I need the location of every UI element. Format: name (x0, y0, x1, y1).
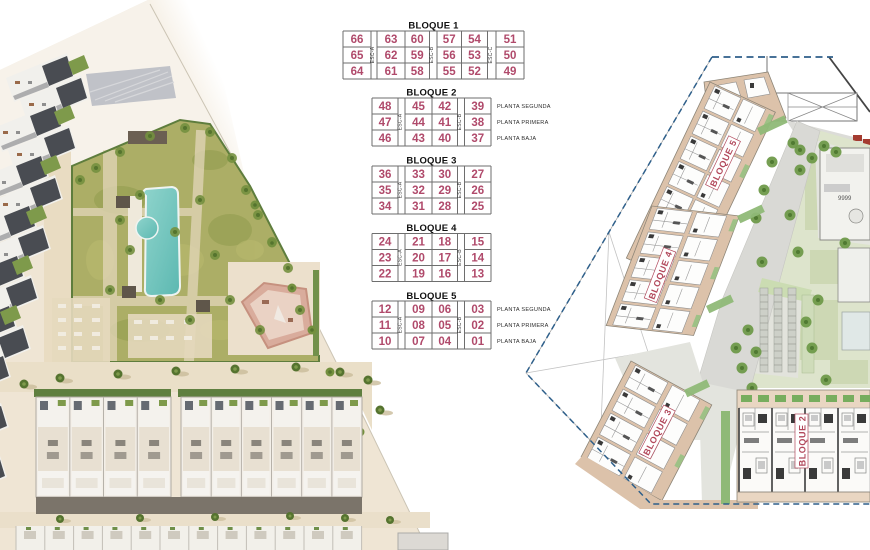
svg-text:ESC-A: ESC-A (398, 316, 404, 333)
svg-text:39: 39 (471, 101, 484, 113)
svg-text:42: 42 (438, 101, 451, 113)
svg-text:23: 23 (379, 253, 392, 265)
svg-text:31: 31 (412, 201, 425, 213)
svg-text:47: 47 (379, 117, 392, 129)
svg-text:BLOQUE 2: BLOQUE 2 (798, 416, 808, 467)
svg-text:34: 34 (379, 201, 392, 213)
svg-text:50: 50 (504, 50, 517, 62)
svg-text:ESC-B: ESC-B (457, 249, 463, 266)
svg-text:38: 38 (471, 117, 484, 129)
svg-text:26: 26 (471, 185, 484, 197)
svg-text:08: 08 (412, 320, 425, 332)
svg-text:36: 36 (379, 169, 392, 181)
svg-text:PLANTA BAJA: PLANTA BAJA (497, 136, 536, 142)
svg-text:ESC-A: ESC-A (370, 46, 376, 63)
svg-text:43: 43 (412, 133, 425, 145)
svg-text:ESC-A: ESC-A (398, 181, 404, 198)
svg-text:15: 15 (471, 237, 484, 249)
svg-text:PLANTA SEGUNDA: PLANTA SEGUNDA (497, 307, 551, 313)
svg-text:61: 61 (385, 66, 398, 78)
svg-text:63: 63 (385, 34, 398, 46)
svg-text:BLOQUE 1: BLOQUE 1 (408, 21, 459, 32)
svg-text:17: 17 (438, 253, 451, 265)
svg-text:58: 58 (411, 66, 424, 78)
svg-text:BLOQUE 3: BLOQUE 3 (406, 156, 456, 167)
svg-text:ESC-B: ESC-B (457, 113, 463, 130)
svg-text:18: 18 (438, 237, 451, 249)
svg-text:53: 53 (468, 50, 481, 62)
svg-text:11: 11 (379, 320, 392, 332)
svg-text:29: 29 (438, 185, 451, 197)
svg-text:52: 52 (468, 66, 481, 78)
svg-text:9999: 9999 (838, 196, 852, 202)
svg-text:54: 54 (468, 34, 481, 46)
svg-text:64: 64 (351, 66, 364, 78)
svg-text:19: 19 (412, 269, 425, 281)
svg-text:20: 20 (412, 253, 425, 265)
svg-text:33: 33 (412, 169, 425, 181)
svg-text:PLANTA SEGUNDA: PLANTA SEGUNDA (497, 104, 551, 110)
svg-text:ESC-A: ESC-A (398, 113, 404, 130)
svg-text:12: 12 (379, 304, 392, 316)
svg-text:09: 09 (412, 304, 425, 316)
svg-text:66: 66 (351, 34, 364, 46)
svg-text:BLOQUE 2: BLOQUE 2 (406, 88, 456, 99)
svg-text:22: 22 (379, 269, 392, 281)
svg-text:02: 02 (471, 320, 484, 332)
svg-text:46: 46 (379, 133, 392, 145)
svg-text:48: 48 (379, 101, 392, 113)
svg-text:57: 57 (443, 34, 456, 46)
svg-text:21: 21 (412, 237, 425, 249)
svg-text:49: 49 (504, 66, 517, 78)
svg-text:14: 14 (471, 253, 484, 265)
svg-text:04: 04 (438, 336, 451, 348)
svg-text:07: 07 (412, 336, 425, 348)
svg-text:65: 65 (351, 50, 364, 62)
svg-text:ESC-C: ESC-C (488, 46, 494, 63)
svg-text:ESC-B: ESC-B (457, 181, 463, 198)
svg-text:PLANTA BAJA: PLANTA BAJA (497, 339, 536, 345)
svg-text:62: 62 (385, 50, 398, 62)
svg-text:BLOQUE 5: BLOQUE 5 (406, 291, 457, 302)
svg-text:44: 44 (412, 117, 425, 129)
svg-text:24: 24 (379, 237, 392, 249)
svg-text:59: 59 (411, 50, 424, 62)
svg-text:06: 06 (438, 304, 451, 316)
svg-text:40: 40 (438, 133, 451, 145)
svg-text:10: 10 (379, 336, 392, 348)
svg-text:01: 01 (471, 336, 484, 348)
svg-text:25: 25 (471, 201, 484, 213)
svg-text:ESC-B: ESC-B (457, 316, 463, 333)
svg-text:03: 03 (471, 304, 484, 316)
svg-text:41: 41 (438, 117, 451, 129)
svg-text:60: 60 (411, 34, 424, 46)
svg-text:37: 37 (471, 133, 484, 145)
svg-text:51: 51 (504, 34, 517, 46)
svg-text:BLOQUE 4: BLOQUE 4 (406, 223, 457, 234)
svg-text:ESC-A: ESC-A (398, 249, 404, 266)
svg-text:PLANTA PRIMERA: PLANTA PRIMERA (497, 120, 549, 126)
svg-text:PLANTA PRIMERA: PLANTA PRIMERA (497, 323, 549, 329)
svg-text:28: 28 (438, 201, 451, 213)
svg-text:27: 27 (471, 169, 484, 181)
svg-text:30: 30 (438, 169, 451, 181)
svg-text:05: 05 (438, 320, 451, 332)
svg-text:ESC-B: ESC-B (429, 46, 435, 63)
svg-text:56: 56 (443, 50, 456, 62)
svg-text:45: 45 (412, 101, 425, 113)
svg-text:35: 35 (379, 185, 392, 197)
svg-text:32: 32 (412, 185, 425, 197)
svg-text:13: 13 (471, 269, 484, 281)
svg-text:16: 16 (438, 269, 451, 281)
svg-text:55: 55 (443, 66, 456, 78)
